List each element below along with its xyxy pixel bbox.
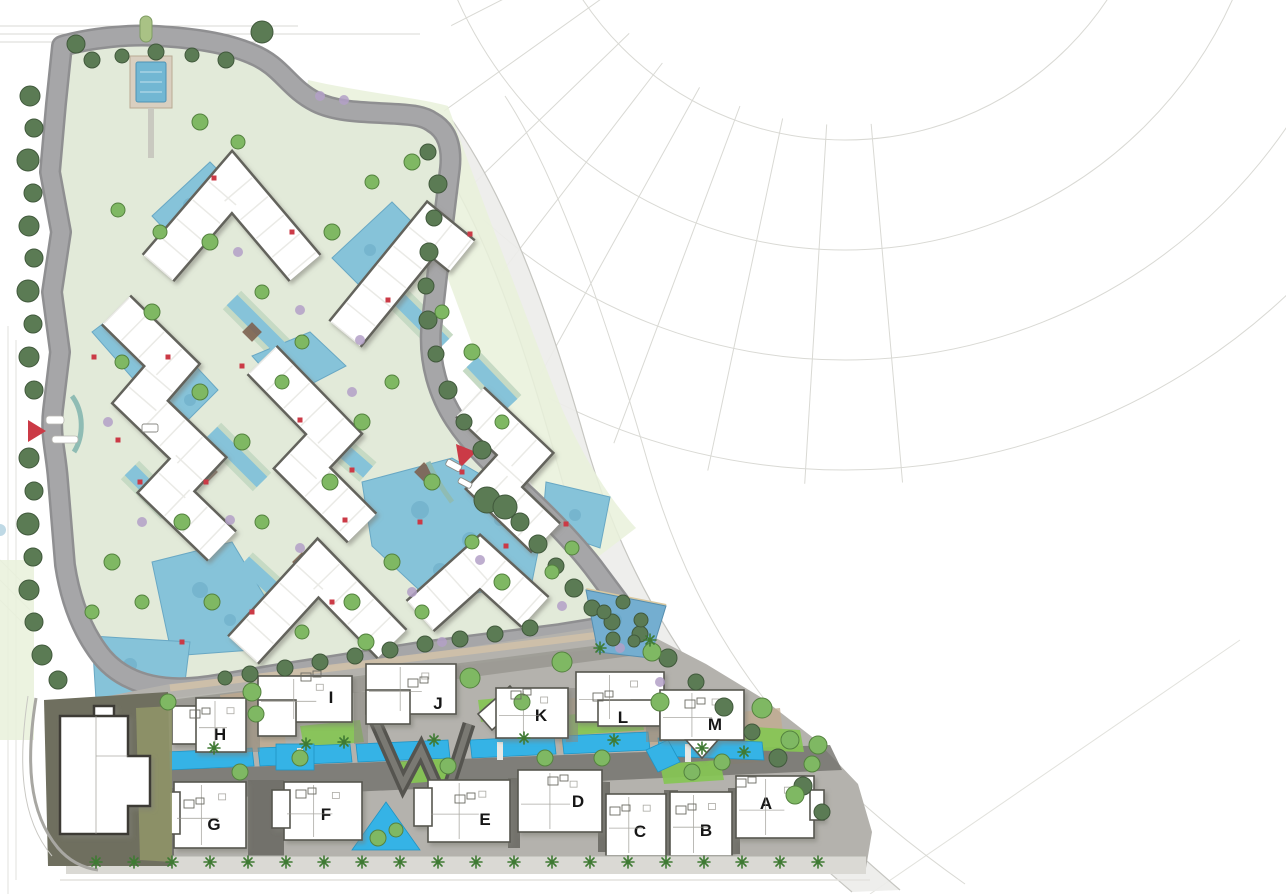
shrub-icon (655, 677, 665, 687)
tree-icon (49, 671, 67, 689)
tree-icon (295, 335, 309, 349)
tree-icon (84, 52, 100, 68)
red-marker-icon (298, 418, 303, 423)
shrub-icon (347, 387, 357, 397)
tree-icon (17, 280, 39, 302)
tree-icon (714, 754, 730, 770)
red-marker-icon (250, 610, 255, 615)
palm-icon (470, 856, 482, 868)
palm-icon (584, 856, 596, 868)
building-label-e: E (479, 810, 490, 829)
tree-icon (752, 698, 772, 718)
tree-icon (19, 448, 39, 468)
tree-icon (814, 804, 830, 820)
red-marker-icon (343, 518, 348, 523)
red-marker-icon (240, 364, 245, 369)
palm-icon (428, 734, 440, 746)
building-b[interactable]: B (670, 792, 732, 856)
tree-icon (651, 693, 669, 711)
street-frontage (60, 856, 870, 880)
red-marker-icon (92, 355, 97, 360)
tree-icon (275, 375, 289, 389)
tree-icon (464, 344, 480, 360)
shrub-icon (295, 305, 305, 315)
tree-icon (565, 541, 579, 555)
palm-icon (518, 732, 530, 744)
building-label-b: B (700, 821, 712, 840)
tree-icon (404, 154, 420, 170)
tree-icon (456, 414, 472, 430)
tree-icon (255, 285, 269, 299)
tree-icon (202, 234, 218, 250)
tree-icon (243, 683, 261, 701)
shrub-icon (355, 335, 365, 345)
tree-icon (25, 613, 43, 631)
tree-icon (417, 636, 433, 652)
tree-icon (25, 249, 43, 267)
red-marker-icon (504, 544, 509, 549)
palm-icon (280, 856, 292, 868)
tree-icon (104, 554, 120, 570)
shrub-icon (103, 417, 113, 427)
shrub-icon (475, 555, 485, 565)
palm-icon (660, 856, 672, 868)
palm-icon (698, 856, 710, 868)
tree-icon (365, 175, 379, 189)
tree-icon (684, 764, 700, 780)
tree-icon (522, 620, 538, 636)
building-label-i: I (329, 688, 334, 707)
tree-icon (19, 580, 39, 600)
tree-icon (460, 668, 480, 688)
tree-icon (111, 203, 125, 217)
tree-icon (234, 434, 250, 450)
tree-icon (428, 346, 444, 362)
palm-icon (318, 856, 330, 868)
road-median (140, 16, 152, 42)
red-marker-icon (386, 298, 391, 303)
red-marker-icon (468, 232, 473, 237)
tree-icon (25, 119, 43, 137)
tree-icon (153, 225, 167, 239)
tree-icon (452, 631, 468, 647)
red-marker-icon (460, 470, 465, 475)
tree-icon (17, 513, 39, 535)
tree-icon (385, 375, 399, 389)
tree-icon (322, 474, 338, 490)
palm-icon (774, 856, 786, 868)
tree-icon (597, 605, 611, 619)
tree-icon (786, 786, 804, 804)
tree-icon (529, 535, 547, 553)
tree-icon (67, 35, 85, 53)
corner-plot (23, 692, 172, 870)
tree-icon (688, 674, 704, 690)
shrub-icon (225, 515, 235, 525)
tree-icon (781, 731, 799, 749)
tree-icon (382, 642, 398, 658)
tree-icon (628, 635, 640, 647)
tree-icon (324, 224, 340, 240)
palm-icon (394, 856, 406, 868)
tree-icon (218, 52, 234, 68)
building-label-d: D (572, 792, 584, 811)
tree-icon (115, 355, 129, 369)
tree-icon (545, 565, 559, 579)
shrub-icon (437, 637, 447, 647)
palm-icon (608, 734, 620, 746)
palm-icon (338, 736, 350, 748)
tree-icon (218, 671, 232, 685)
tree-icon (384, 554, 400, 570)
building-label-c: C (634, 822, 646, 841)
red-marker-icon (166, 355, 171, 360)
building-label-l: L (618, 708, 628, 727)
tree-icon (594, 750, 610, 766)
tree-icon (144, 304, 160, 320)
red-marker-icon (138, 480, 143, 485)
red-marker-icon (204, 480, 209, 485)
tree-icon (424, 474, 440, 490)
tree-icon (426, 210, 442, 226)
tree-icon (514, 694, 530, 710)
tree-icon (473, 441, 491, 459)
tree-icon (429, 175, 447, 193)
building-label-g: G (207, 815, 220, 834)
building-c[interactable]: C (606, 794, 666, 856)
tree-icon (347, 648, 363, 664)
shrub-icon (557, 601, 567, 611)
tree-icon (494, 574, 510, 590)
red-marker-icon (350, 468, 355, 473)
palm-icon (644, 634, 656, 646)
palm-icon (356, 856, 368, 868)
tree-icon (17, 149, 39, 171)
tree-icon (25, 482, 43, 500)
tree-icon (643, 643, 661, 661)
tree-icon (242, 666, 258, 682)
tree-icon (354, 414, 370, 430)
tree-icon (25, 381, 43, 399)
tree-icon (358, 634, 374, 650)
palm-icon (166, 856, 178, 868)
palm-icon (242, 856, 254, 868)
palm-icon (812, 856, 824, 868)
red-marker-icon (290, 230, 295, 235)
red-marker-icon (418, 520, 423, 525)
palm-icon (128, 856, 140, 868)
tree-icon (344, 594, 360, 610)
tree-icon (420, 243, 438, 261)
building-e[interactable]: E (414, 780, 510, 842)
palm-icon (432, 856, 444, 868)
palm-icon (594, 642, 606, 654)
tree-icon (19, 347, 39, 367)
tree-icon (19, 216, 39, 236)
tree-icon (659, 649, 677, 667)
tree-icon (415, 605, 429, 619)
palm-icon (696, 742, 708, 754)
tree-icon (255, 515, 269, 529)
tree-icon (24, 184, 42, 202)
tree-icon (420, 144, 436, 160)
palm-icon (204, 856, 216, 868)
shrub-icon (339, 95, 349, 105)
tree-icon (192, 384, 208, 400)
tree-icon (634, 613, 648, 627)
building-h[interactable]: H (172, 698, 246, 752)
tree-icon (440, 758, 456, 774)
tree-icon (292, 750, 308, 766)
tree-icon (85, 605, 99, 619)
building-label-f: F (321, 805, 331, 824)
tree-icon (115, 49, 129, 63)
tree-icon (744, 724, 760, 740)
tree-icon (606, 632, 620, 646)
tree-icon (495, 415, 509, 429)
red-marker-icon (116, 438, 121, 443)
tree-icon (312, 654, 328, 670)
tree-icon (20, 86, 40, 106)
tree-icon (804, 756, 820, 772)
red-marker-icon (212, 176, 217, 181)
palm-icon (508, 856, 520, 868)
palm-icon (738, 746, 750, 758)
tree-icon (232, 764, 248, 780)
palm-icon (546, 856, 558, 868)
red-marker-icon (564, 522, 569, 527)
tree-icon (251, 21, 273, 43)
tree-icon (565, 579, 583, 597)
tree-icon (435, 305, 449, 319)
shrub-icon (137, 517, 147, 527)
tree-icon (616, 595, 630, 609)
tree-icon (295, 625, 309, 639)
tree-icon (769, 749, 787, 767)
tree-icon (487, 626, 503, 642)
tree-icon (511, 513, 529, 531)
shrub-icon (407, 587, 417, 597)
car-icon (142, 424, 158, 432)
tree-icon (537, 750, 553, 766)
tree-icon (552, 652, 572, 672)
tree-icon (174, 514, 190, 530)
masterplan-map: H I J K L M G F (0, 0, 1286, 894)
tree-icon (32, 645, 52, 665)
tree-icon (24, 548, 42, 566)
tree-icon (389, 823, 403, 837)
tree-icon (715, 698, 733, 716)
tree-icon (370, 830, 386, 846)
tree-icon (248, 706, 264, 722)
tree-icon (277, 660, 293, 676)
masterplan-canvas: H I J K L M G F (0, 0, 1286, 894)
tree-icon (192, 114, 208, 130)
tree-icon (24, 315, 42, 333)
palm-icon (736, 856, 748, 868)
tree-icon (439, 381, 457, 399)
red-marker-icon (180, 640, 185, 645)
red-marker-icon (330, 600, 335, 605)
building-f[interactable]: F (272, 782, 362, 840)
tree-icon (419, 311, 437, 329)
palm-icon (622, 856, 634, 868)
tree-icon (160, 694, 176, 710)
tree-icon (418, 278, 434, 294)
palm-icon (208, 742, 220, 754)
palm-icon (300, 738, 312, 750)
tree-icon (148, 44, 164, 60)
tree-icon (231, 135, 245, 149)
tree-icon (204, 594, 220, 610)
tree-icon (465, 535, 479, 549)
shrub-icon (295, 543, 305, 553)
building-label-j: J (433, 694, 442, 713)
shrub-icon (315, 91, 325, 101)
shrub-icon (233, 247, 243, 257)
tree-icon (135, 595, 149, 609)
palm-icon (90, 856, 102, 868)
tree-icon (809, 736, 827, 754)
tree-icon (185, 48, 199, 62)
